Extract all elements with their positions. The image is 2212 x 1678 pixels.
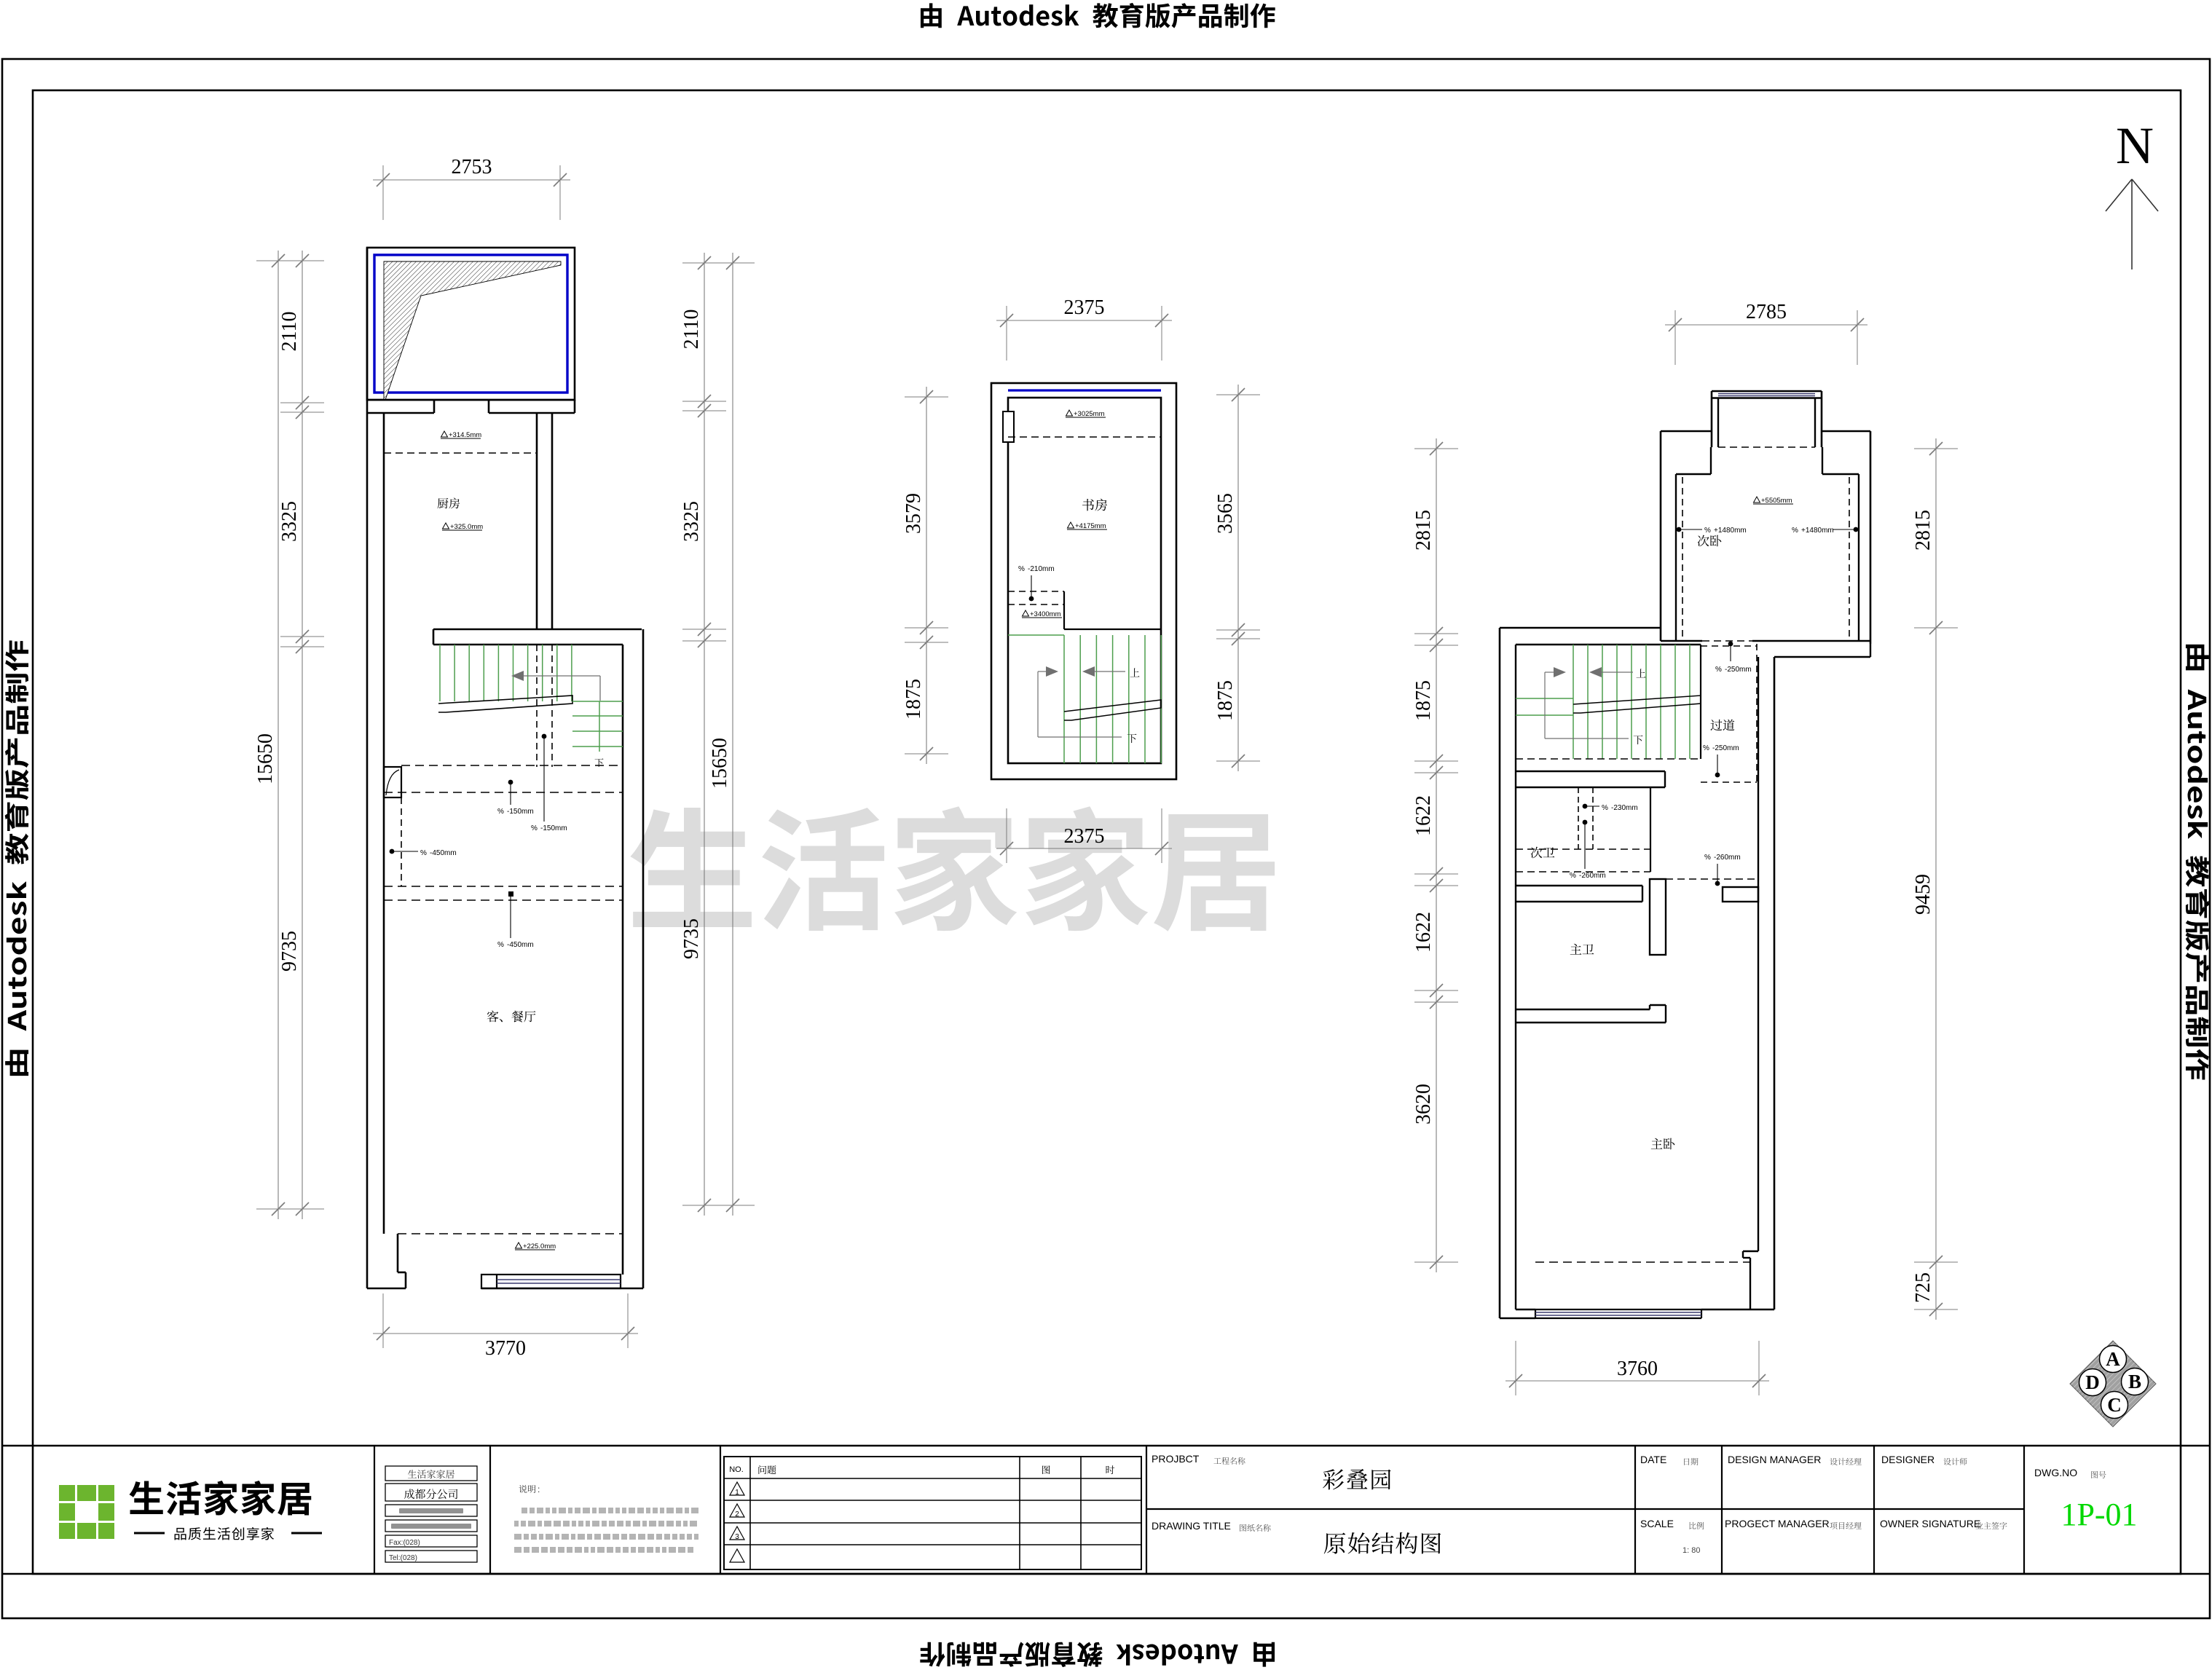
svg-text:3760: 3760 bbox=[1617, 1358, 1658, 1380]
svg-text:-260mm: -260mm bbox=[1579, 872, 1606, 880]
svg-text:N: N bbox=[2116, 117, 2154, 175]
svg-text:-250mm: -250mm bbox=[1725, 666, 1752, 674]
svg-text:1: 80: 1: 80 bbox=[1682, 1546, 1700, 1555]
svg-text:PROGECT MANAGER: PROGECT MANAGER bbox=[1725, 1518, 1830, 1529]
svg-text:1622: 1622 bbox=[1412, 795, 1435, 836]
svg-text:%: % bbox=[497, 941, 504, 949]
svg-text:1875: 1875 bbox=[1412, 680, 1435, 721]
svg-text:+1480mm: +1480mm bbox=[1801, 527, 1834, 535]
svg-text:SCALE: SCALE bbox=[1640, 1518, 1674, 1529]
svg-text:D: D bbox=[2085, 1371, 2100, 1393]
svg-text:DESIGN MANAGER: DESIGN MANAGER bbox=[1728, 1454, 1821, 1465]
svg-text:1: 1 bbox=[735, 1489, 739, 1497]
svg-text:2375: 2375 bbox=[1064, 825, 1105, 848]
svg-text:3579: 3579 bbox=[902, 493, 925, 534]
svg-text:-450mm: -450mm bbox=[430, 849, 457, 857]
svg-text:3565: 3565 bbox=[1214, 493, 1237, 534]
svg-text:%: % bbox=[1792, 527, 1798, 535]
svg-text:Tel:(028): Tel:(028) bbox=[389, 1554, 417, 1562]
svg-text:2815: 2815 bbox=[1912, 510, 1934, 551]
svg-text:-450mm: -450mm bbox=[507, 941, 534, 949]
svg-text:9735: 9735 bbox=[278, 931, 301, 972]
svg-text:%: % bbox=[1570, 872, 1576, 880]
svg-text:9459: 9459 bbox=[1912, 874, 1934, 915]
svg-text:15650: 15650 bbox=[709, 738, 731, 789]
svg-text:9735: 9735 bbox=[680, 918, 703, 959]
svg-text:DWG.NO: DWG.NO bbox=[2034, 1467, 2077, 1478]
svg-text:1P-01: 1P-01 bbox=[2061, 1497, 2137, 1532]
svg-text:-150mm: -150mm bbox=[540, 824, 567, 832]
svg-text:-260mm: -260mm bbox=[1714, 854, 1741, 862]
svg-text:+225.0mm: +225.0mm bbox=[523, 1242, 556, 1250]
svg-text:NO.: NO. bbox=[729, 1465, 744, 1474]
svg-text:Fax:(028): Fax:(028) bbox=[389, 1539, 420, 1547]
svg-text:+314.5mm: +314.5mm bbox=[449, 431, 481, 439]
svg-text:%: % bbox=[1704, 854, 1711, 862]
svg-text:B: B bbox=[2128, 1371, 2141, 1393]
svg-text:C: C bbox=[2107, 1394, 2122, 1416]
svg-text:2110: 2110 bbox=[278, 312, 301, 352]
svg-text:3770: 3770 bbox=[485, 1337, 526, 1360]
svg-text:%: % bbox=[1018, 565, 1025, 573]
svg-text:-150mm: -150mm bbox=[507, 808, 534, 816]
svg-text:2753: 2753 bbox=[452, 156, 492, 178]
svg-text:%: % bbox=[1703, 744, 1709, 752]
svg-text:%: % bbox=[1715, 666, 1722, 674]
svg-text:725: 725 bbox=[1912, 1272, 1934, 1303]
svg-text:2785: 2785 bbox=[1746, 301, 1787, 323]
svg-text:DRAWING TITLE: DRAWING TITLE bbox=[1152, 1520, 1231, 1532]
svg-text:DATE: DATE bbox=[1640, 1454, 1666, 1465]
svg-text:3: 3 bbox=[735, 1533, 739, 1541]
svg-text:1875: 1875 bbox=[1214, 680, 1237, 721]
svg-text:OWNER SIGNATURE: OWNER SIGNATURE bbox=[1880, 1518, 1980, 1529]
svg-text:3325: 3325 bbox=[278, 501, 301, 542]
svg-text:2110: 2110 bbox=[680, 310, 703, 350]
svg-text:PROJBCT: PROJBCT bbox=[1152, 1453, 1200, 1465]
svg-text:-210mm: -210mm bbox=[1028, 565, 1055, 573]
svg-text:%: % bbox=[1602, 804, 1608, 812]
svg-text:+4175mm: +4175mm bbox=[1075, 522, 1106, 530]
svg-text:-230mm: -230mm bbox=[1611, 804, 1638, 812]
svg-text:2: 2 bbox=[735, 1510, 739, 1519]
svg-text:A: A bbox=[2106, 1348, 2120, 1370]
svg-text:1875: 1875 bbox=[902, 679, 925, 720]
svg-text:+5505mm: +5505mm bbox=[1761, 497, 1792, 505]
svg-text:2815: 2815 bbox=[1412, 510, 1435, 551]
svg-text:-250mm: -250mm bbox=[1712, 744, 1739, 752]
svg-text:+325.0mm: +325.0mm bbox=[450, 523, 483, 531]
svg-text:+3400mm: +3400mm bbox=[1030, 610, 1061, 618]
svg-text:15650: 15650 bbox=[254, 733, 277, 784]
svg-text:1622: 1622 bbox=[1412, 912, 1435, 953]
svg-text::: : bbox=[538, 1484, 540, 1494]
svg-text:+1480mm: +1480mm bbox=[1714, 527, 1747, 535]
svg-text:%: % bbox=[531, 824, 538, 832]
svg-text:%: % bbox=[1704, 527, 1711, 535]
svg-text:DESIGNER: DESIGNER bbox=[1881, 1454, 1934, 1465]
svg-text:%: % bbox=[420, 849, 427, 857]
svg-text:2375: 2375 bbox=[1064, 296, 1105, 319]
svg-text:%: % bbox=[497, 808, 504, 816]
svg-text:3620: 3620 bbox=[1412, 1084, 1435, 1124]
svg-text:+3025mm: +3025mm bbox=[1074, 410, 1105, 418]
svg-text:3325: 3325 bbox=[680, 501, 703, 542]
